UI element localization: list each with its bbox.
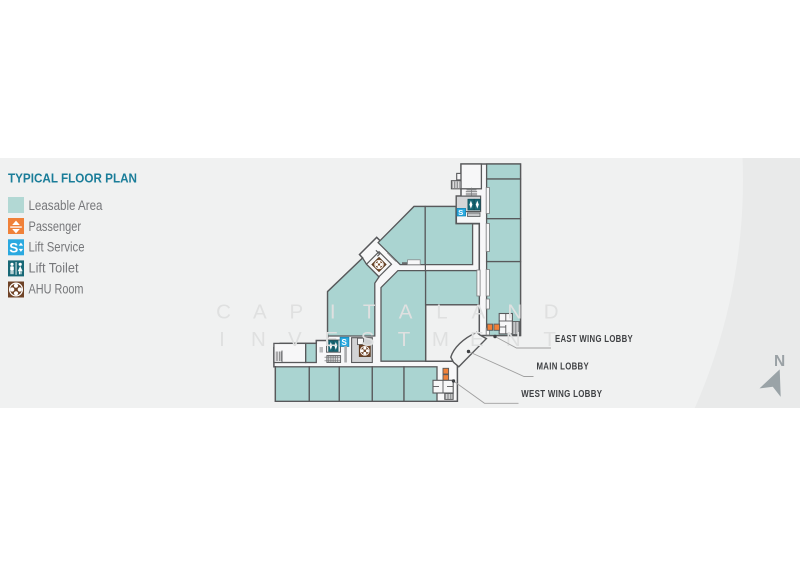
svg-text:WEST WING LOBBY: WEST WING LOBBY: [521, 389, 602, 400]
svg-text:AHU Room: AHU Room: [29, 282, 84, 297]
svg-text:N: N: [251, 328, 266, 351]
svg-text:E: E: [324, 328, 338, 351]
svg-text:Lift Service: Lift Service: [29, 239, 85, 254]
svg-text:L: L: [436, 301, 447, 324]
svg-text:Passenger: Passenger: [29, 219, 82, 234]
svg-text:V: V: [288, 328, 302, 351]
svg-text:MAIN LOBBY: MAIN LOBBY: [537, 361, 590, 372]
svg-text:S: S: [342, 338, 348, 347]
svg-text:N: N: [774, 353, 785, 370]
svg-text:T: T: [363, 301, 376, 324]
svg-text:TYPICAL FLOOR PLAN: TYPICAL FLOOR PLAN: [8, 172, 137, 186]
svg-text:A: A: [472, 301, 486, 324]
svg-text:N: N: [507, 301, 522, 324]
svg-text:S: S: [458, 208, 463, 217]
svg-text:EAST WING LOBBY: EAST WING LOBBY: [555, 334, 633, 345]
svg-text:Lift Toilet: Lift Toilet: [29, 260, 79, 275]
svg-text:A: A: [399, 301, 413, 324]
svg-text:I: I: [330, 301, 336, 324]
svg-text:S: S: [9, 240, 18, 255]
svg-text:C: C: [216, 301, 231, 324]
svg-text:P: P: [289, 301, 303, 324]
svg-text:E: E: [470, 328, 484, 351]
svg-text:A: A: [253, 301, 267, 324]
svg-text:D: D: [544, 301, 559, 324]
svg-text:S: S: [361, 328, 375, 351]
svg-text:I: I: [219, 328, 225, 351]
svg-text:Leasable Area: Leasable Area: [29, 198, 103, 213]
svg-text:T: T: [398, 328, 411, 351]
svg-text:M: M: [432, 328, 449, 351]
